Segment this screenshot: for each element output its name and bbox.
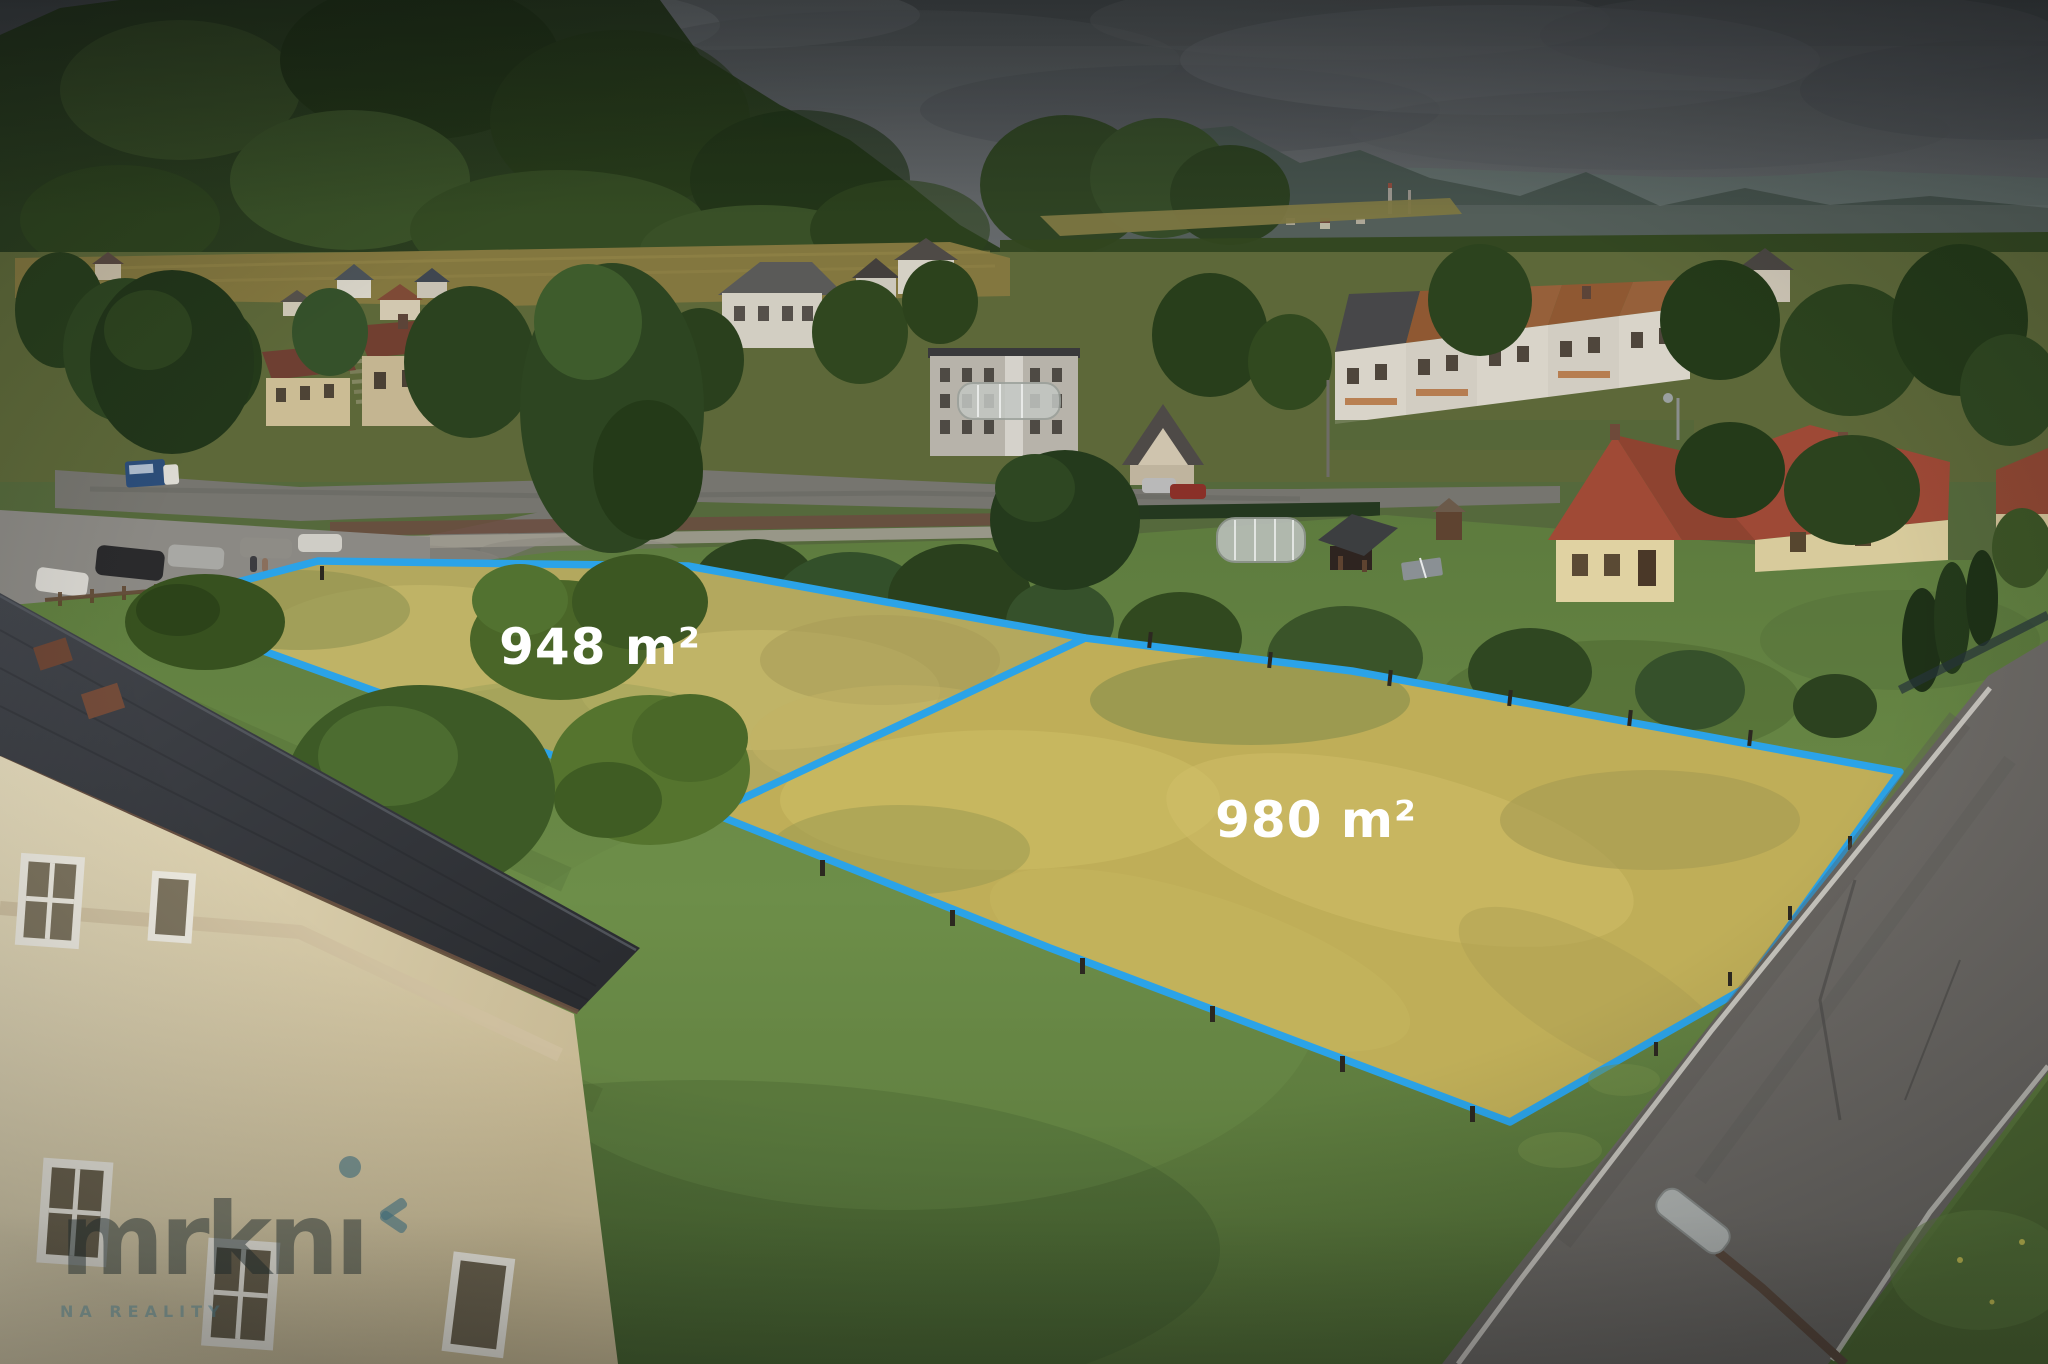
tree-tall-central [520, 263, 704, 553]
tree-foreground-left [90, 270, 254, 454]
parcel-area-label-right: 980 m² [1170, 795, 1462, 845]
greenhouse-1 [958, 383, 1060, 419]
parcel-area-label-left: 948 m² [455, 622, 745, 672]
watermark-brand-i: ı [335, 1190, 365, 1290]
tree-divider-bush [550, 694, 750, 845]
greenhouse-2 [1217, 518, 1305, 562]
watermark-brand-text: mrknı [60, 1156, 366, 1290]
tree-corner-bush [125, 574, 285, 670]
aerial-photo: 948 m² 980 m² mrknı NA REALITY [0, 0, 2048, 1364]
watermark-brand-stem: mrkn [60, 1181, 335, 1298]
tree-mid-right [990, 450, 1140, 590]
watermark-chevron-icon [378, 1192, 414, 1238]
watermark-logo: mrknı NA REALITY [60, 1156, 414, 1321]
watermark-tagline: NA REALITY [60, 1302, 414, 1321]
watermark-brand-row: mrknı [60, 1156, 414, 1290]
